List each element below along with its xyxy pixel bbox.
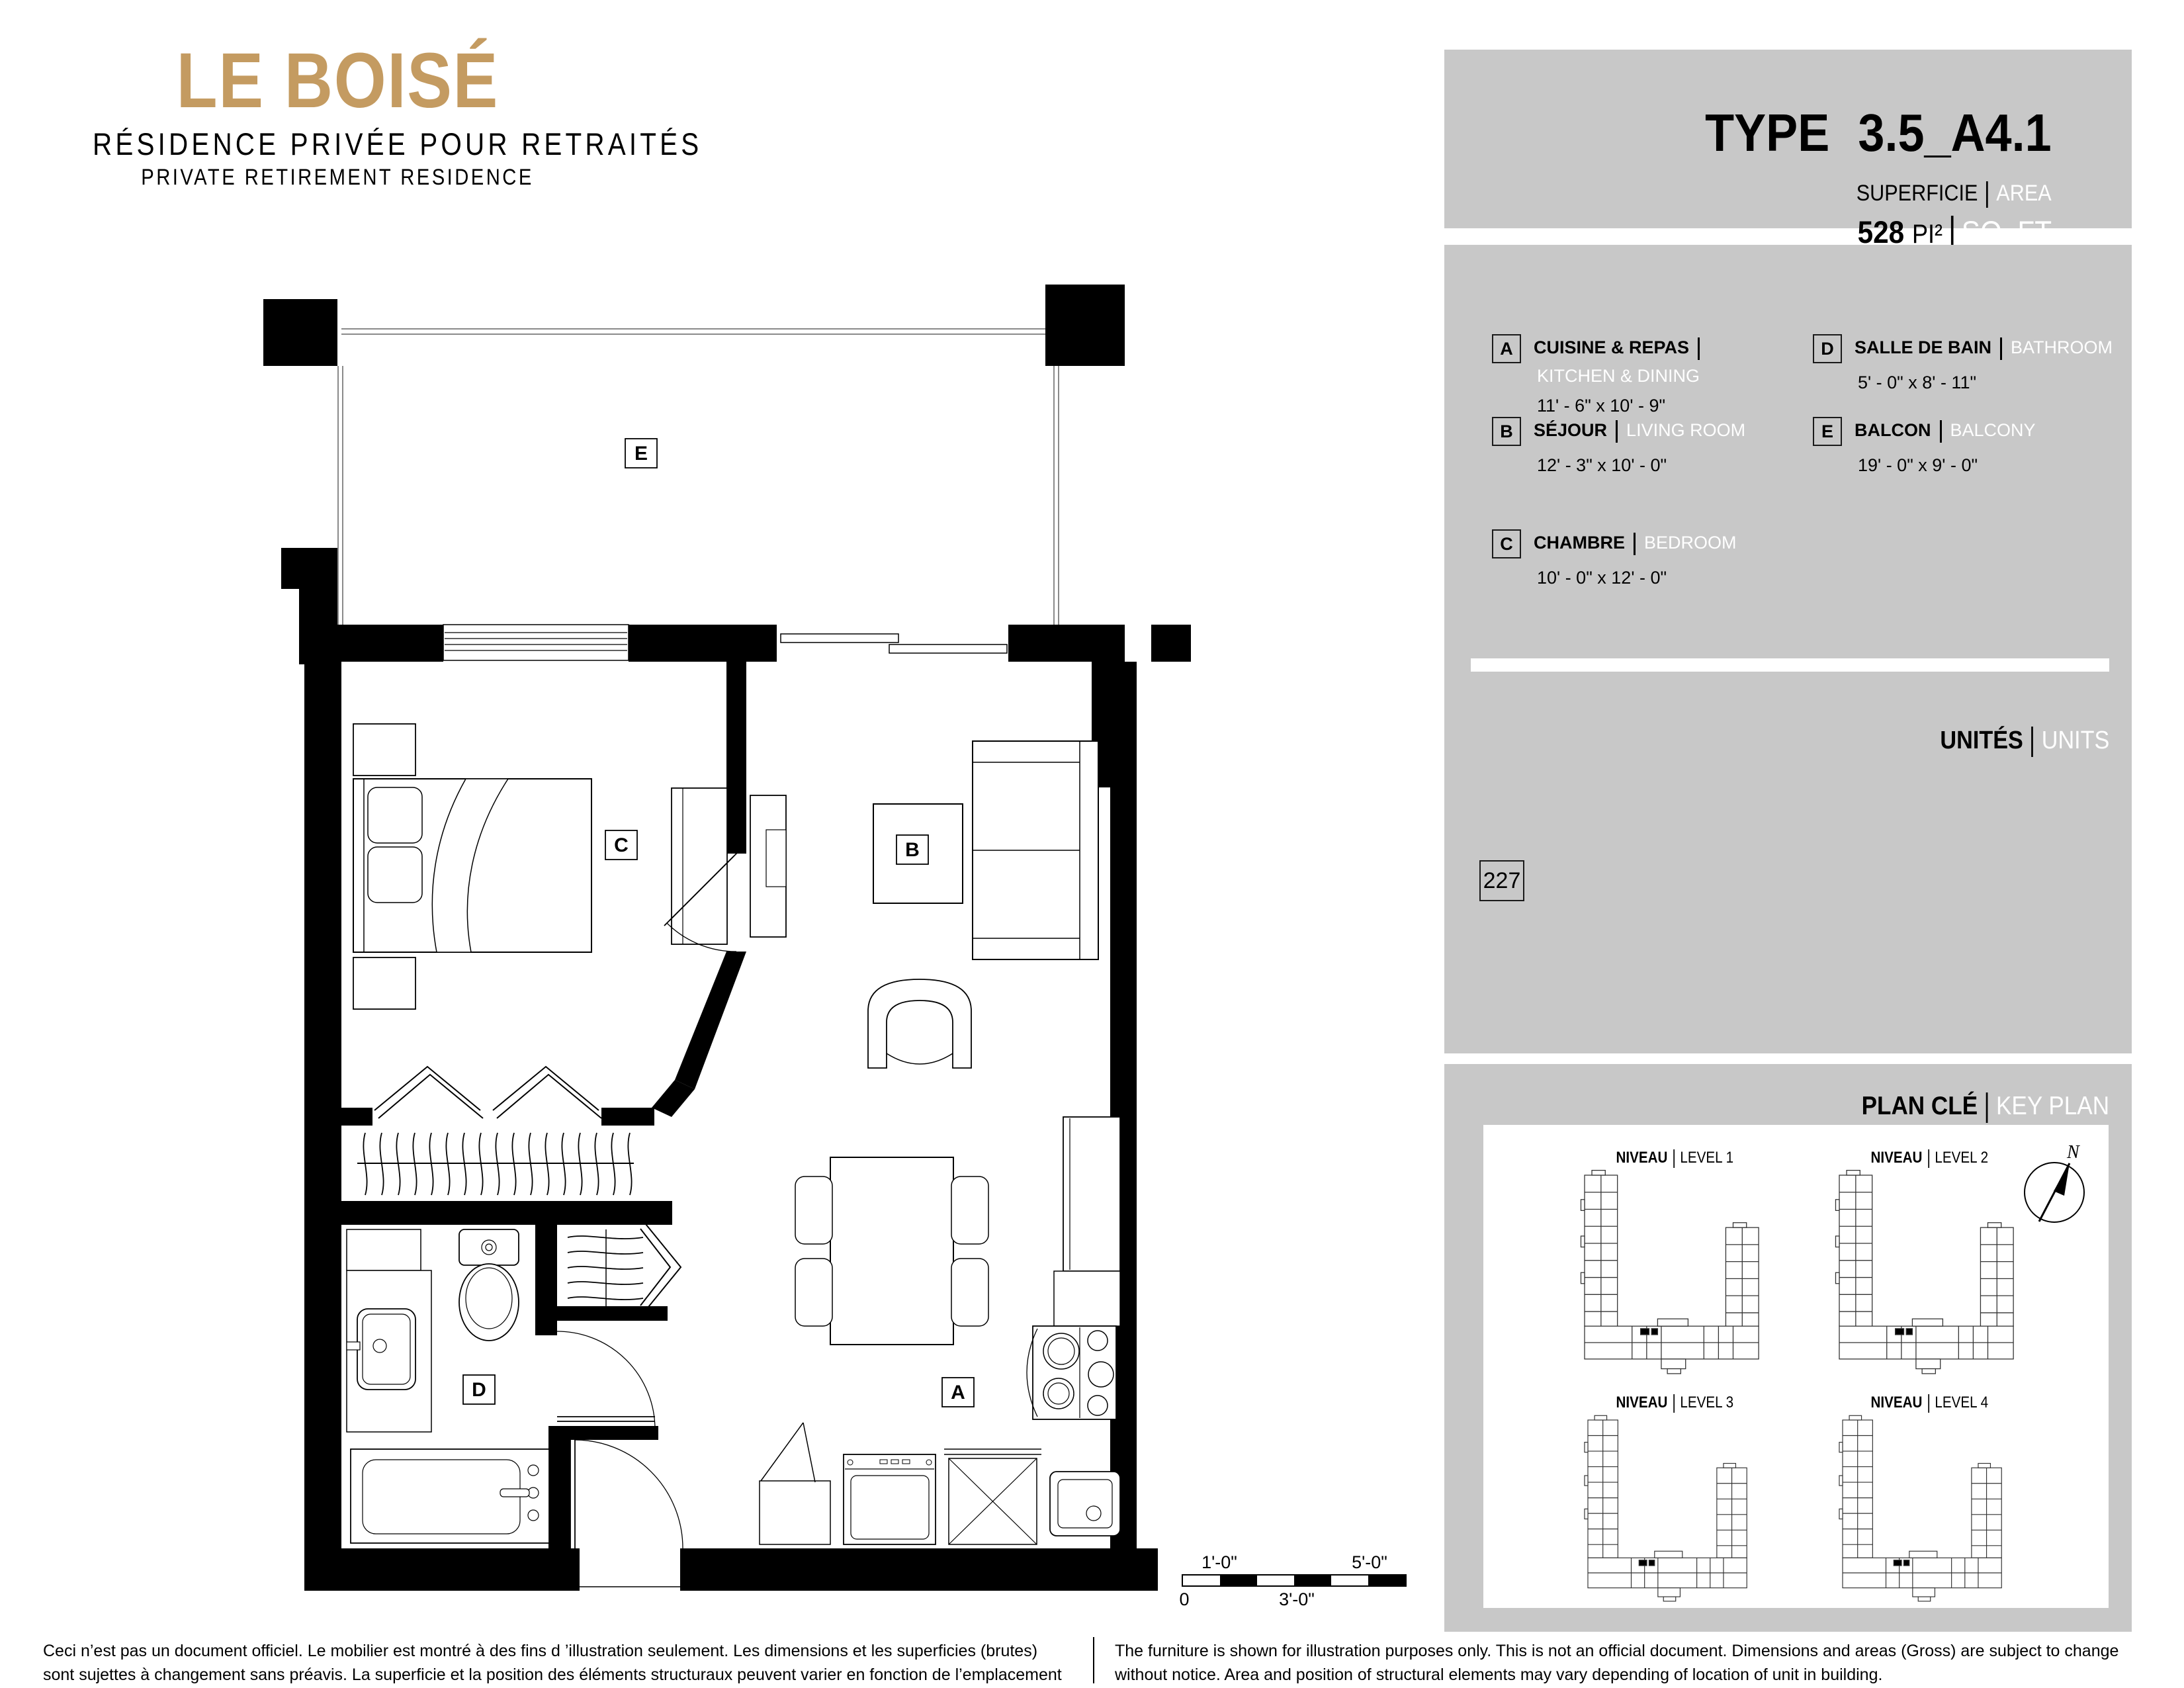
svg-text:D: D [472, 1379, 486, 1401]
bedroom-furniture [353, 724, 727, 1009]
chair [795, 1177, 832, 1244]
legend-name-c: CHAMBREBEDROOM [1534, 533, 1737, 555]
svg-text:E: E [634, 443, 648, 465]
closet-hangers [357, 1133, 634, 1195]
svg-text:C: C [614, 834, 629, 856]
legend-key-b: B [1492, 417, 1521, 446]
area-labels: SUPERFICIEAREA [1835, 181, 2052, 208]
legend-key-c: C [1492, 529, 1521, 558]
dishwasher [844, 1454, 936, 1544]
type-panel: TYPE3.5_A4.1 SUPERFICIEAREA 528 PI²SQ. F… [1444, 50, 2132, 228]
legend-dims-b: 12' - 3" x 10' - 0" [1537, 455, 1667, 476]
chair [951, 1177, 988, 1244]
brand-subtitle-en: PRIVATE RETIREMENT RESIDENCE [43, 165, 632, 191]
units-label: UNITÉSUNITS [1921, 727, 2109, 757]
chair [951, 1259, 988, 1326]
keyplan-level-2 [1835, 1171, 2013, 1374]
keyplan-label-level3: NIVEAULEVEL 3 [1562, 1394, 1787, 1413]
entry-door [570, 1440, 683, 1587]
bed [353, 779, 591, 952]
dining-table [830, 1157, 953, 1345]
disclaimer-en: The furniture is shown for illustration … [1115, 1640, 2144, 1687]
chair [795, 1259, 832, 1326]
units-divider-bar [1471, 658, 2109, 672]
keyplan-label-level1: NIVEAULEVEL 1 [1562, 1149, 1787, 1168]
nightstand [353, 724, 415, 776]
floor-plan-drawing: E C B D A [258, 278, 1191, 1615]
legend-name-a-fr: CUISINE & REPAS [1534, 337, 1708, 360]
legend-dims-c: 10' - 0" x 12' - 0" [1537, 568, 1667, 588]
living-room-furniture [750, 741, 1098, 1068]
room-label-b: B [896, 835, 928, 864]
unit-number: 227 [1479, 860, 1524, 901]
legend-dims-a: 11' - 6" x 10' - 9" [1537, 396, 1665, 416]
scale-label: 5'-0" [1330, 1552, 1409, 1573]
svg-text:N: N [2066, 1142, 2080, 1163]
room-label-e: E [625, 439, 657, 468]
svg-text:B: B [905, 839, 920, 861]
scale-bar-segments [1182, 1574, 1407, 1587]
brand-subtitle-fr: RÉSIDENCE PRIVÉE POUR RETRAITÉS [43, 126, 632, 162]
toilet [459, 1229, 519, 1341]
legend-key-a: A [1492, 334, 1521, 363]
armchair [868, 979, 971, 1068]
legend-name-a-en: KITCHEN & DINING [1537, 366, 1700, 386]
brand-logo: LE BOISÉ RÉSIDENCE PRIVÉE POUR RETRAITÉS… [43, 38, 632, 191]
kitchen-dining [760, 1117, 1120, 1544]
disclaimer-divider [1093, 1637, 1094, 1683]
room-label-d: D [463, 1375, 495, 1404]
keyplan-title: PLAN CLÉKEY PLAN [1834, 1092, 2109, 1123]
pillow [368, 787, 422, 843]
vanity-sink [347, 1229, 431, 1432]
bathroom-fixtures [347, 1229, 549, 1543]
dresser [672, 788, 727, 944]
scale-label: 0 [1145, 1589, 1224, 1610]
keyplan-level-4 [1839, 1415, 2001, 1601]
legend-name-e: BALCONBALCONY [1855, 420, 2036, 443]
bathtub [351, 1449, 549, 1543]
base-cabinet [944, 1449, 1041, 1544]
legend-key-d: D [1813, 334, 1842, 363]
disclaimer-fr: Ceci n’est pas un document officiel. Le … [43, 1640, 1062, 1688]
nightstand [353, 957, 415, 1009]
sliding-door [781, 634, 1007, 653]
keyplan-label-level2: NIVEAULEVEL 2 [1817, 1149, 2042, 1168]
fridge [1063, 1117, 1120, 1271]
svg-text:A: A [951, 1382, 965, 1403]
stove [1027, 1326, 1116, 1419]
legend-key-e: E [1813, 417, 1842, 446]
brand-title: LE BOISÉ [43, 38, 632, 124]
legend-name-b: SÉJOURLIVING ROOM [1534, 420, 1745, 443]
corner-cabinet [760, 1423, 830, 1544]
legend-dims-d: 5' - 0" x 8' - 11" [1858, 373, 1976, 393]
legend-dims-e: 19' - 0" x 9' - 0" [1858, 455, 1978, 476]
kitchen-counter [1054, 1271, 1120, 1326]
closet-bifold-doors [374, 1067, 601, 1118]
scale-label: 3'-0" [1257, 1589, 1336, 1610]
linen-closet [568, 1224, 681, 1310]
room-label-a: A [942, 1378, 974, 1407]
type-title: TYPE3.5_A4.1 [1667, 103, 2052, 163]
keyplan-label-level4: NIVEAULEVEL 4 [1817, 1394, 2042, 1413]
keyplan-level-3 [1585, 1415, 1747, 1601]
bedroom-window [443, 625, 629, 660]
floorplan-sheet: LE BOISÉ RÉSIDENCE PRIVÉE POUR RETRAITÉS… [0, 0, 2184, 1688]
legend-name-d: SALLE DE BAINBATHROOM [1855, 337, 2113, 360]
scale-label: 1'-0" [1180, 1552, 1259, 1573]
legend-panel: A CUISINE & REPAS KITCHEN & DINING 11' -… [1444, 245, 2132, 1053]
kitchen-sink [1050, 1472, 1120, 1536]
keyplan-level-1 [1581, 1171, 1759, 1374]
keyplan-drawings: N [1483, 1125, 2109, 1608]
balcony-railing [338, 329, 1059, 625]
sofa [973, 741, 1098, 959]
pillow [368, 847, 422, 903]
room-label-c: C [605, 830, 637, 860]
bathroom-door [557, 1331, 655, 1429]
tv-unit [750, 795, 786, 937]
